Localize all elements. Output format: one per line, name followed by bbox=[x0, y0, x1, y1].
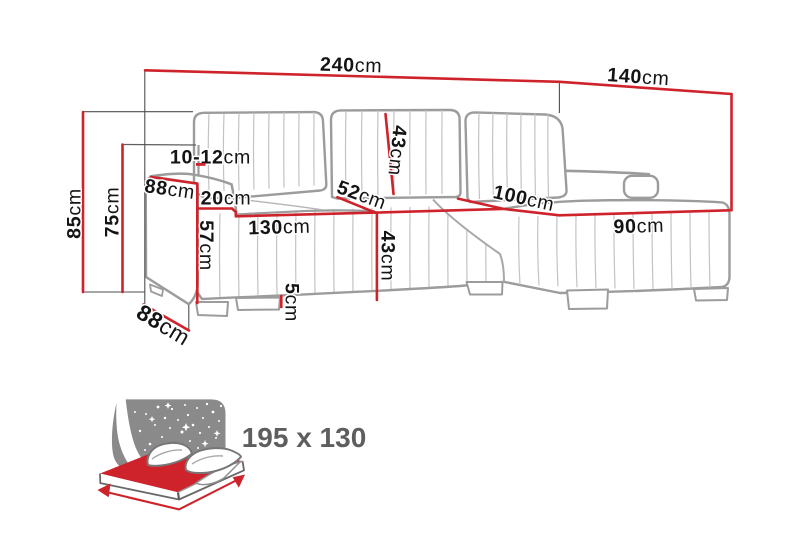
svg-text:130cm: 130cm bbox=[248, 216, 311, 240]
svg-text:10-12cm: 10-12cm bbox=[170, 147, 251, 169]
svg-text:75cm: 75cm bbox=[102, 187, 124, 238]
svg-text:5cm: 5cm bbox=[281, 283, 303, 322]
svg-text:140cm: 140cm bbox=[607, 64, 671, 90]
svg-text:195 x 130: 195 x 130 bbox=[242, 422, 367, 453]
svg-text:20cm: 20cm bbox=[201, 188, 252, 210]
svg-text:85cm: 85cm bbox=[64, 188, 86, 239]
svg-text:90cm: 90cm bbox=[613, 215, 664, 239]
svg-text:43cm: 43cm bbox=[377, 231, 399, 282]
svg-text:240cm: 240cm bbox=[320, 54, 383, 78]
svg-text:57cm: 57cm bbox=[195, 220, 217, 271]
